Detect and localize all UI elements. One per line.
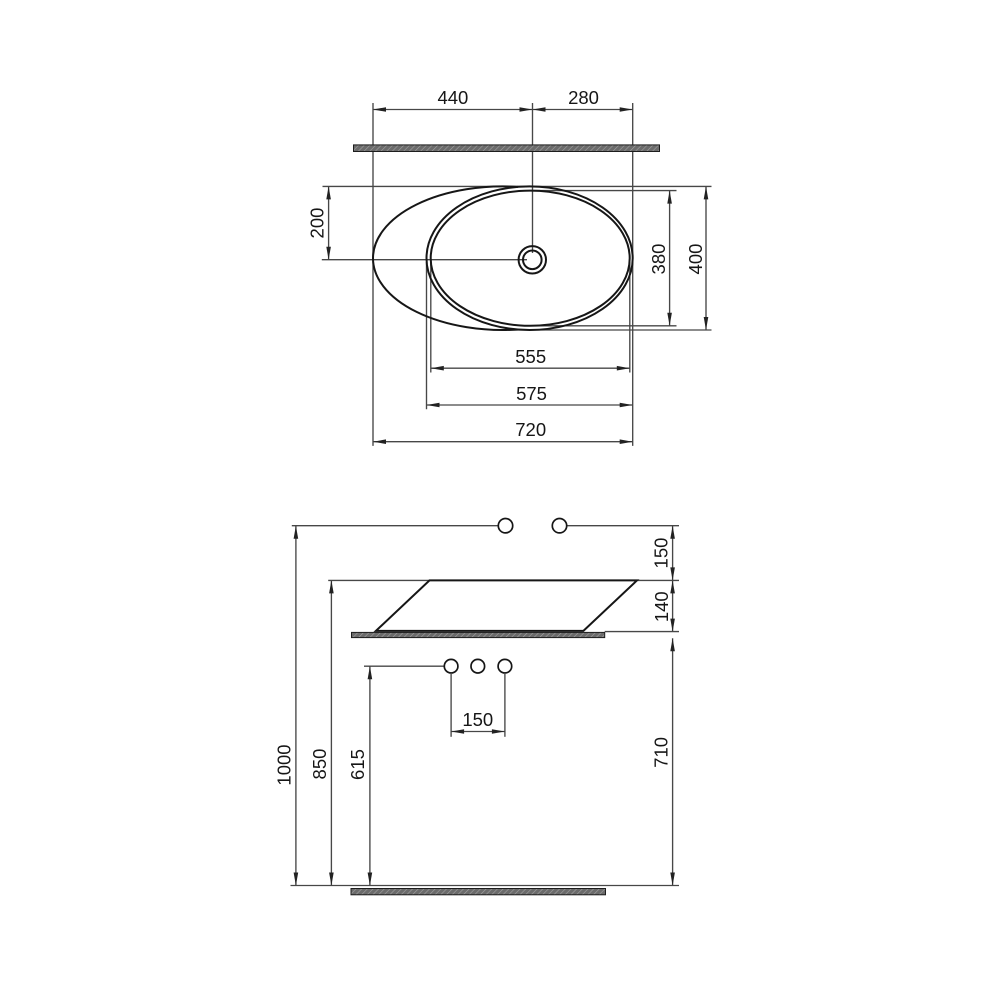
svg-text:200: 200	[306, 208, 327, 239]
svg-text:850: 850	[309, 749, 330, 780]
svg-text:150: 150	[462, 709, 493, 730]
svg-text:150: 150	[651, 538, 672, 569]
svg-text:140: 140	[651, 591, 672, 622]
svg-text:1000: 1000	[273, 744, 294, 785]
svg-text:710: 710	[651, 737, 672, 768]
svg-text:280: 280	[568, 87, 599, 108]
svg-text:380: 380	[648, 244, 669, 275]
svg-text:440: 440	[437, 87, 468, 108]
svg-text:720: 720	[515, 419, 546, 440]
svg-text:400: 400	[685, 244, 706, 275]
svg-text:575: 575	[516, 383, 547, 404]
svg-text:615: 615	[347, 749, 368, 780]
svg-text:555: 555	[515, 346, 546, 367]
